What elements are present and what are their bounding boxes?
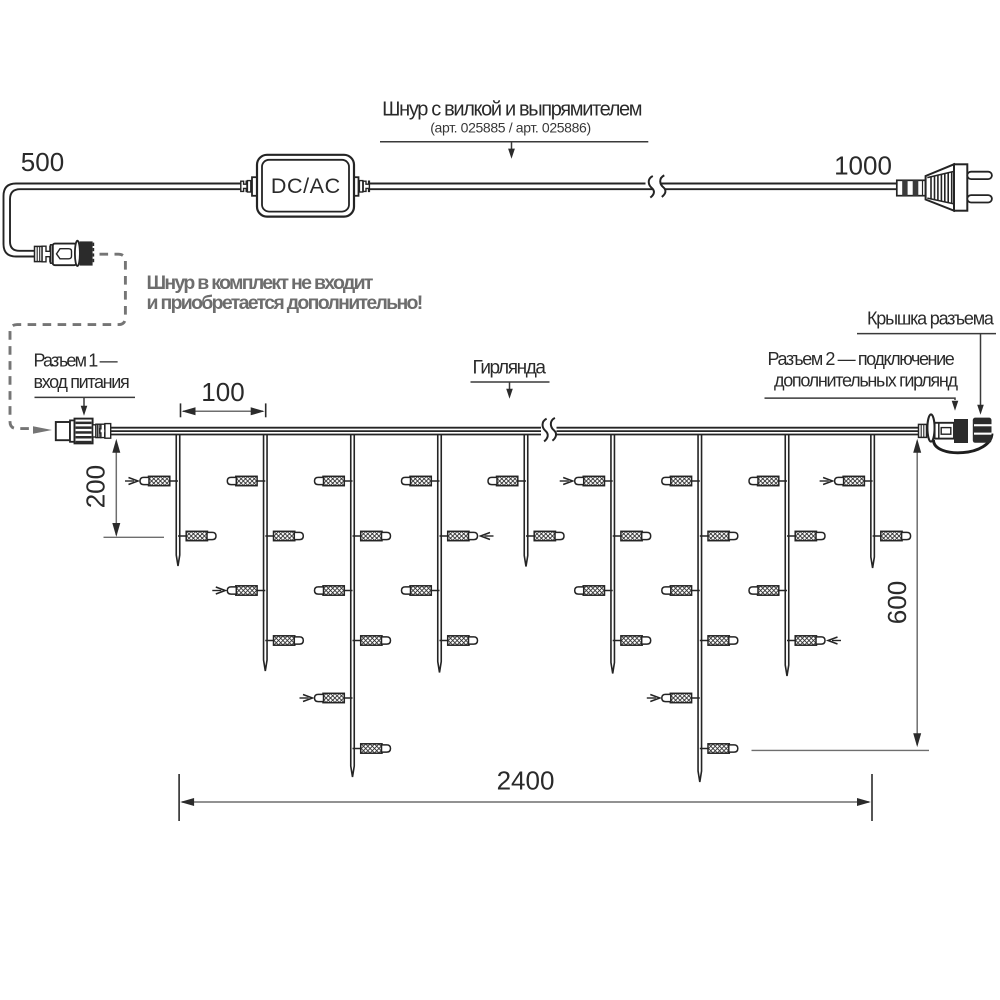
svg-text:Разъем 1 —: Разъем 1 — [34,351,118,371]
svg-text:дополнительных гирлянд: дополнительных гирлянд [774,370,958,390]
svg-text:Шнур в комплект не входит: Шнур в комплект не входит [147,272,373,294]
svg-text:1000: 1000 [834,151,892,181]
svg-text:Крышка разъема: Крышка разъема [867,309,995,329]
svg-text:Разъем 2 — подключение: Разъем 2 — подключение [768,349,955,369]
svg-text:и приобретается дополнительно!: и приобретается дополнительно! [147,292,422,314]
svg-text:Шнур с вилкой и выпрямителем: Шнур с вилкой и выпрямителем [382,99,642,121]
svg-text:2400: 2400 [497,766,555,796]
svg-text:500: 500 [21,147,64,177]
svg-text:вход питания: вход питания [34,372,129,392]
svg-text:100: 100 [201,377,244,407]
svg-text:(арт. 025885 / арт. 025886): (арт. 025885 / арт. 025886) [430,120,591,136]
svg-text:600: 600 [882,581,912,624]
svg-text:DC/AC: DC/AC [271,174,341,198]
svg-text:Гирлянда: Гирлянда [473,358,547,379]
svg-text:200: 200 [81,465,111,508]
